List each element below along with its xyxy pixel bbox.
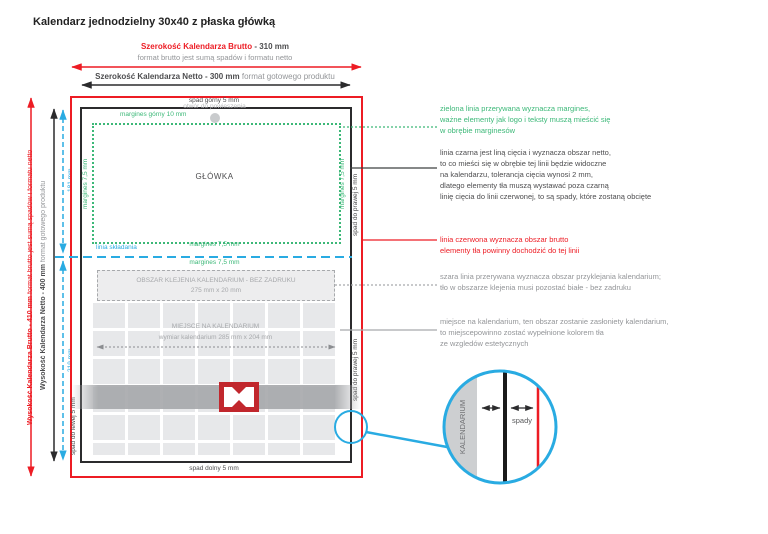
height-brutto-line: Wysokość Kalendarza Brutto - 410 mm form…	[26, 96, 35, 478]
margin-above-fold-label: margines 7,5 mm	[92, 241, 337, 249]
zoom-connector-line	[366, 432, 447, 447]
glue-area-line2: 275 mm x 20 mm	[98, 286, 334, 296]
bleed-bottom-label: spad dolny 5 mm	[80, 465, 348, 473]
height-netto-note: format gotowego produktu	[40, 180, 47, 263]
page-title: Kalendarz jednodzielny 30x40 z płaska gł…	[33, 16, 275, 28]
current-week-band	[72, 385, 361, 409]
date-window-marker	[219, 382, 259, 412]
note-red-brutto: linia czerwona wyznacza obszar brutto el…	[440, 234, 579, 256]
window-notch-bottom	[232, 400, 246, 407]
glue-area-line1: OBSZAR KLEJENIA KALENDARIUM - BEZ ZADRUK…	[98, 276, 334, 286]
height-brutto-label: Wysokość Kalendarza Brutto - 410 mm	[27, 296, 34, 425]
zoom-band-label: KALENDARIUM	[458, 400, 467, 454]
zoom-detail-content	[443, 369, 538, 486]
width-brutto-line: Szerokość Kalendarza Brutto - 310 mm	[55, 42, 375, 52]
calendar-spec-diagram: Kalendarz jednodzielny 30x40 z płaska gł…	[0, 0, 768, 534]
calendar-area-label: MIEJSCE NA KALENDARIUM wymiar kalendariu…	[93, 321, 338, 343]
height-netto-label: Wysokość Kalendarza Netto - 400 mm	[40, 264, 47, 390]
margin-top-label: margines górny 10 mm	[120, 111, 186, 119]
margin-frame	[92, 123, 341, 244]
width-brutto-note: format brutto jest sumą spadów i formatu…	[55, 52, 375, 63]
hanging-hole-label: otwór do powieszenia	[92, 103, 337, 111]
note-gray-glue: szara linia przerywana wyznacza obszar p…	[440, 271, 661, 293]
bleed-right-upper-label: spad do prawej 5 mm	[352, 150, 360, 260]
width-netto-line: Szerokość Kalendarza Netto - 300 mm form…	[55, 72, 375, 82]
height-brutto-note: format brutto jest sumą spadów i formatu…	[27, 149, 34, 295]
width-netto-label: Szerokość Kalendarza Netto - 300 mm	[95, 72, 240, 81]
window-notch-top	[232, 387, 246, 394]
zoom-spady-label: spady	[512, 416, 532, 425]
note-gray-calendar: miejsce na kalendarium, ten obszar zosta…	[440, 316, 668, 349]
zoom-detail-circle	[444, 371, 556, 483]
note-black-cutline: linia czarna jest liną cięcia i wyznacza…	[440, 147, 651, 202]
glue-area-box: OBSZAR KLEJENIA KALENDARIUM - BEZ ZADRUK…	[97, 270, 335, 301]
margin-left-label: margines 7,5 mm	[82, 128, 90, 240]
header-area-label: GŁÓWKA	[92, 172, 337, 182]
margin-below-fold-label: margines 7,5 mm	[92, 259, 337, 267]
zoom-calendarium-band	[443, 369, 477, 486]
width-brutto-label: Szerokość Kalendarza Brutto	[141, 42, 252, 51]
width-brutto-value: - 310 mm	[252, 42, 289, 51]
margin-right-label: margines 7,5 mm	[339, 128, 347, 240]
note-green-margin: zielona linia przerywana wyznacza margin…	[440, 103, 610, 136]
height-netto-line: Wysokość Kalendarza Netto - 400 mm forma…	[39, 107, 48, 463]
width-netto-note: format gotowego produktu	[240, 72, 335, 81]
